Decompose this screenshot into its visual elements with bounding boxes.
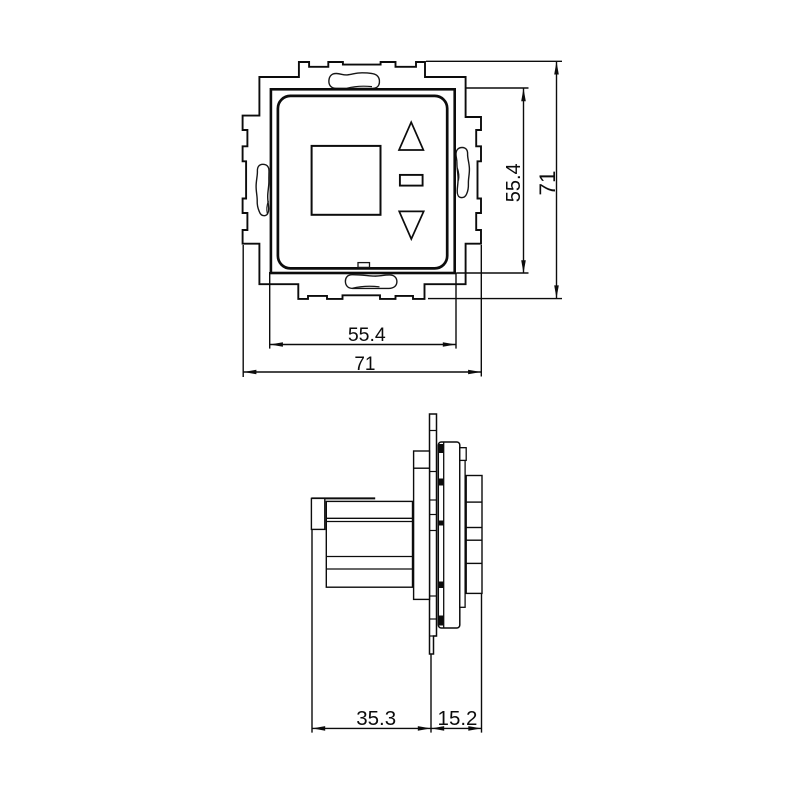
svg-text:15.2: 15.2	[438, 707, 478, 730]
svg-text:35.3: 35.3	[356, 707, 396, 730]
svg-text:71: 71	[354, 354, 375, 375]
svg-text:71: 71	[535, 170, 560, 195]
svg-text:55.4: 55.4	[348, 324, 386, 346]
svg-text:55.4: 55.4	[503, 163, 525, 202]
